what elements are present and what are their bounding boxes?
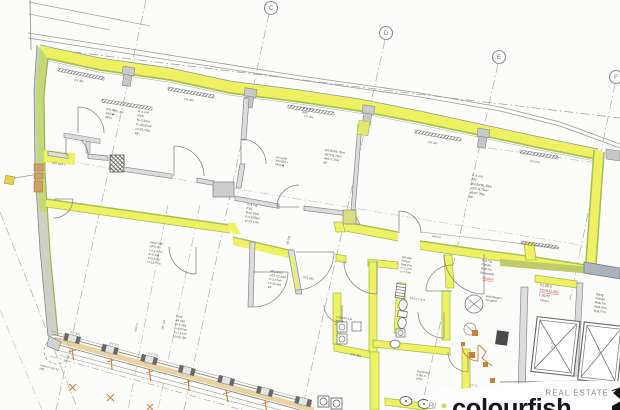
svg-text:Bi: Bi xyxy=(428,401,437,410)
svg-text:KF: KF xyxy=(135,131,140,136)
svg-text:17.11.: 17.11. xyxy=(470,383,479,388)
svg-text:E: E xyxy=(497,55,501,61)
svg-text:C: C xyxy=(269,6,274,12)
svg-text:D: D xyxy=(384,31,389,37)
svg-text:F: F xyxy=(614,75,618,81)
svg-text:KF: KF xyxy=(469,195,474,200)
svg-text:colourfish: colourfish xyxy=(452,395,571,410)
svg-text:KF: KF xyxy=(323,161,328,166)
svg-text:PFI: PFI xyxy=(302,110,308,115)
